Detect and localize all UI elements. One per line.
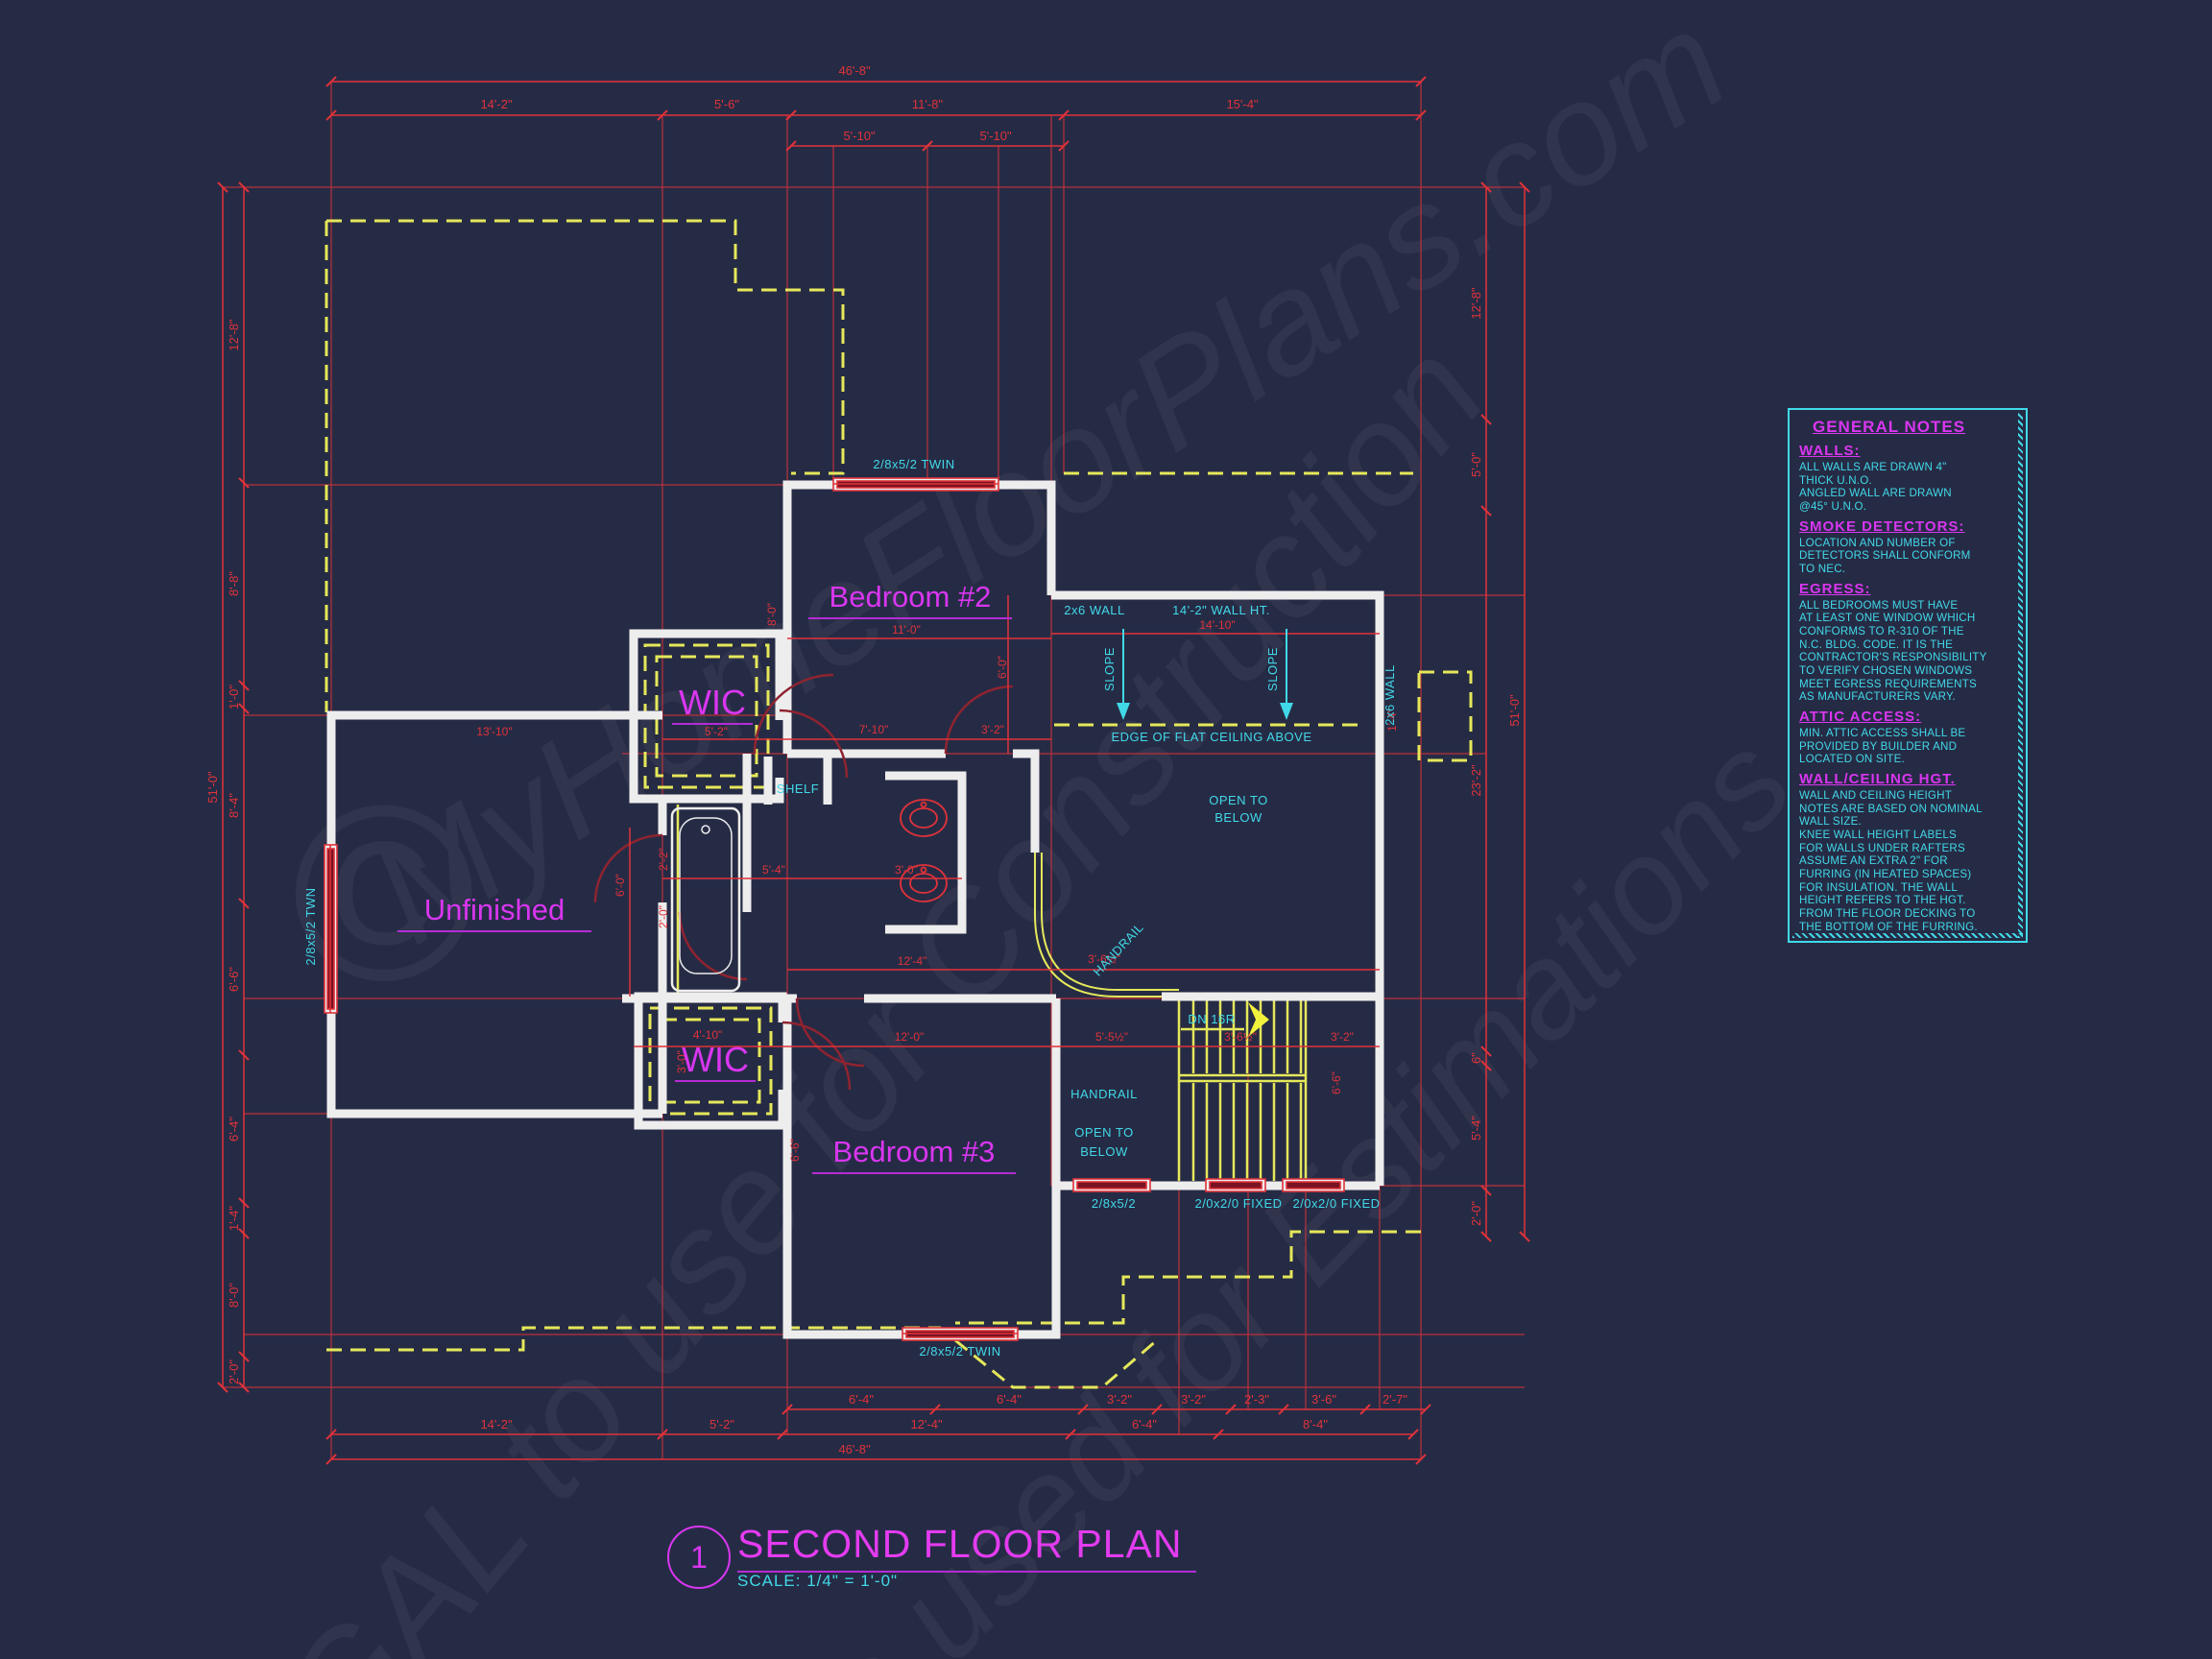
dim-label: 12'-0" <box>895 1030 925 1044</box>
sink-1 <box>901 800 947 836</box>
dim-label: 6'-4" <box>227 1117 241 1142</box>
floor-plan-sheet: © MyHomeFloorPlans.com ILLEGAL to use fo… <box>0 0 2212 1659</box>
notes-body-walls: ALL WALLS ARE DRAWN 4" THICK U.N.O. ANGL… <box>1799 461 2016 514</box>
room-label-unfinished: Unfinished <box>424 893 565 926</box>
window-unfinished-left <box>325 845 337 1013</box>
dim-label: 12'-8" <box>227 319 241 351</box>
stairs <box>1179 1000 1306 1181</box>
dim-label: 1'-0" <box>227 685 241 709</box>
dim-label: 8'-0" <box>227 1283 241 1308</box>
dim-label: 6" <box>1469 1052 1483 1064</box>
dim-label: 3'-6" <box>1311 1392 1336 1407</box>
dim-label: 3'-2" <box>1107 1392 1132 1407</box>
open-below-label: OPEN TO <box>1209 793 1268 807</box>
notes-body-smoke: LOCATION AND NUMBER OF DETECTORS SHALL C… <box>1799 537 2016 576</box>
dim-label: 5'-5½" <box>1095 1030 1128 1044</box>
dim-label: 15'-4" <box>1226 97 1259 111</box>
dim-label: 13'-10" <box>476 725 512 738</box>
dim-label: 12'-4" <box>898 954 927 968</box>
slope-label: SLOPE <box>1265 647 1280 691</box>
room-label-bedroom2: Bedroom #2 <box>829 580 992 613</box>
dim-label: 11'-0" <box>892 623 921 637</box>
general-notes-panel: GENERAL NOTES WALLS: ALL WALLS ARE DRAWN… <box>1788 408 2028 943</box>
open-below-label: BELOW <box>1080 1144 1128 1159</box>
dim-label: 2'-0" <box>1469 1201 1483 1226</box>
notes-heading-wallceiling: WALL/CEILING HGT. <box>1799 771 2016 787</box>
dim-label: 3'-0" <box>895 863 918 877</box>
dim-label: 2'-0" <box>227 1359 241 1384</box>
dim-label: 6'-6" <box>227 967 241 992</box>
stairs-dn-label: DN 16R <box>1188 1012 1235 1026</box>
handrail-label: HANDRAIL <box>1070 1087 1138 1101</box>
dim-label: 5'-6" <box>714 97 739 111</box>
window-label: 2/0x2/0 FIXED <box>1292 1196 1380 1211</box>
plan-title: SECOND FLOOR PLAN <box>737 1522 1196 1573</box>
dim-label: 3'-2" <box>981 723 1004 736</box>
notes-title: GENERAL NOTES <box>1813 418 2016 437</box>
dim-label: 5'-4" <box>1469 1116 1483 1141</box>
dim-label: 46'-8" <box>838 63 871 78</box>
dim-label: 8'-4" <box>227 793 241 818</box>
notes-heading-walls: WALLS: <box>1799 443 2016 459</box>
open-below-label: BELOW <box>1214 810 1262 825</box>
door-bedroom2 <box>946 686 1013 754</box>
dim-label: 1'-4" <box>227 1206 241 1231</box>
notes-body-wallceiling: WALL AND CEILING HEIGHT NOTES ARE BASED … <box>1799 789 2016 933</box>
dim-label: 8'-0" <box>765 603 779 626</box>
window-bedroom3-bottom <box>902 1328 1018 1340</box>
window-fixed-1 <box>1206 1179 1265 1191</box>
dim-label: 5'-10" <box>979 129 1012 143</box>
window-label: 2/8x5/2 TWN <box>303 887 318 965</box>
dim-label: 2'-3" <box>1244 1392 1269 1407</box>
notes-heading-smoke: SMOKE DETECTORS: <box>1799 518 2016 535</box>
shelf-label: SHELF <box>777 781 819 796</box>
dim-label: 6'-6" <box>788 1139 802 1162</box>
dim-label: 3'-6½" <box>1224 1030 1257 1044</box>
notes-heading-attic: ATTIC ACCESS: <box>1799 709 2016 725</box>
notes-heading-egress: EGRESS: <box>1799 581 2016 597</box>
dim-label: 8'-4" <box>1303 1417 1328 1431</box>
room-label-bedroom3: Bedroom #3 <box>833 1135 996 1168</box>
notes-body-attic: MIN. ATTIC ACCESS SHALL BE PROVIDED BY B… <box>1799 727 2016 766</box>
dim-label: 5'-2" <box>705 725 728 738</box>
dim-label: 6'-0" <box>996 656 1009 679</box>
dim-label: 2'-0" <box>657 905 670 928</box>
panel-border-hatch <box>1792 933 2023 938</box>
dim-label: 51'-0" <box>1507 694 1522 727</box>
door-tub-room <box>680 912 747 979</box>
dim-label: 8'-8" <box>227 571 241 596</box>
window-label: 2/0x2/0 FIXED <box>1194 1196 1282 1211</box>
dimension-labels-top: 46'-8" 14'-2" 5'-6" 11'-8" 15'-4" 5'-10"… <box>480 63 1259 143</box>
dim-label: 12'-4" <box>910 1417 943 1431</box>
plan-number: 1 <box>690 1540 708 1575</box>
window-label: 2/8x5/2 TWIN <box>919 1344 1000 1358</box>
dim-label: 14'-2" <box>480 97 513 111</box>
dim-label: 7'-10" <box>859 723 889 736</box>
right-bump-dashed <box>1419 672 1471 760</box>
dim-label: 5'-2" <box>709 1417 734 1431</box>
dim-label: 14'-2" <box>480 1417 513 1431</box>
dim-label: 23'-2" <box>1469 764 1483 797</box>
wall-note: 2x6 WALL <box>1064 603 1125 617</box>
dim-label: 6'-4" <box>1132 1417 1157 1431</box>
room-label-wic1: WIC <box>679 683 746 722</box>
room-label-wic2: WIC <box>682 1040 749 1079</box>
bathtub <box>672 808 739 991</box>
dim-label: 2'-7" <box>1382 1392 1407 1407</box>
wall-note: 2x6 WALL <box>1382 664 1397 726</box>
open-below-label: OPEN TO <box>1074 1125 1134 1140</box>
wall-height-note: 14'-2" WALL HT. <box>1172 603 1270 617</box>
window-bedroom2-top <box>833 478 998 491</box>
window-fixed-2 <box>1283 1179 1344 1191</box>
dim-label: 6'-4" <box>997 1392 1022 1407</box>
dim-label: 6'-4" <box>849 1392 874 1407</box>
dim-label: 11'-8" <box>912 97 944 111</box>
dim-label: 51'-0" <box>205 771 220 804</box>
dim-label: 6'-6" <box>1330 1071 1343 1094</box>
dim-label: 5'-10" <box>843 129 876 143</box>
dim-label: 14'-10" <box>1199 618 1235 632</box>
dim-label: 46'-8" <box>838 1442 871 1456</box>
attic-boundary-dashed <box>326 221 843 473</box>
dim-label: 3'-2" <box>1331 1030 1354 1044</box>
slope-label: SLOPE <box>1102 647 1117 691</box>
plan-number-badge: 1 <box>667 1526 731 1589</box>
window-label: 2/8x5/2 <box>1092 1196 1136 1211</box>
plan-scale: SCALE: 1/4" = 1'-0" <box>737 1572 898 1591</box>
panel-border-hatch <box>2018 413 2023 938</box>
dim-label: 2'-2" <box>657 848 670 871</box>
dim-label: 3'-2" <box>1181 1392 1206 1407</box>
title-block: 1 SECOND FLOOR PLAN SCALE: 1/4" = 1'-0" <box>662 1522 1334 1627</box>
dim-label: 5'-0" <box>1469 452 1483 477</box>
dim-label: 12'-8" <box>1469 287 1483 320</box>
window-label: 2/8x5/2 TWIN <box>873 457 954 471</box>
dim-label: 6'-0" <box>613 874 627 897</box>
watermark: © MyHomeFloorPlans.com ILLEGAL to use fo… <box>60 0 1819 1659</box>
notes-body-egress: ALL BEDROOMS MUST HAVE AT LEAST ONE WIND… <box>1799 599 2016 704</box>
dim-label: 5'-4" <box>762 863 785 877</box>
edge-ceiling-label: EDGE OF FLAT CEILING ABOVE <box>1111 730 1311 744</box>
window-stair-left <box>1073 1179 1150 1191</box>
